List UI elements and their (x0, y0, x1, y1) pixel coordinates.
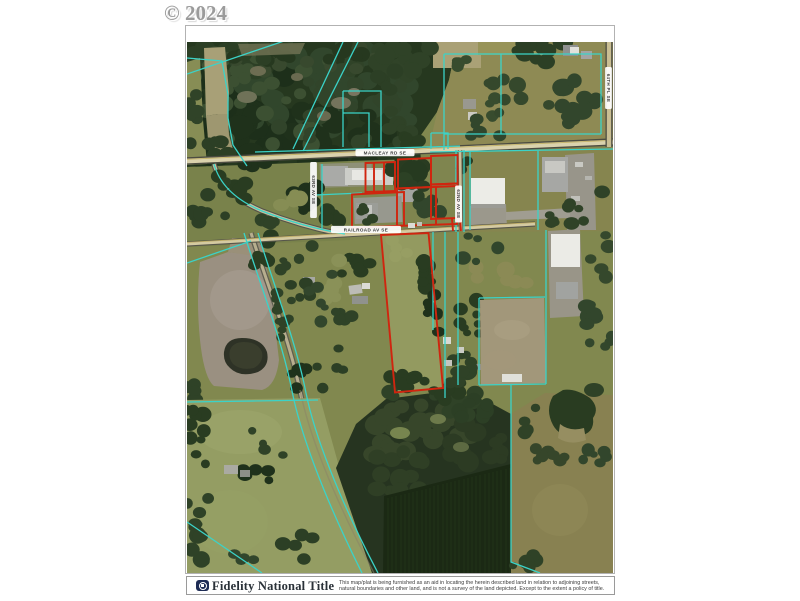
svg-text:MACLEAY RD SE: MACLEAY RD SE (364, 151, 407, 156)
svg-text:RAILROAD AV SE: RAILROAD AV SE (344, 227, 388, 232)
svg-text:64TH PL SE: 64TH PL SE (606, 74, 611, 103)
svg-text:62ND AV SE: 62ND AV SE (456, 189, 461, 218)
svg-text:63RD AV SE: 63RD AV SE (311, 175, 316, 204)
